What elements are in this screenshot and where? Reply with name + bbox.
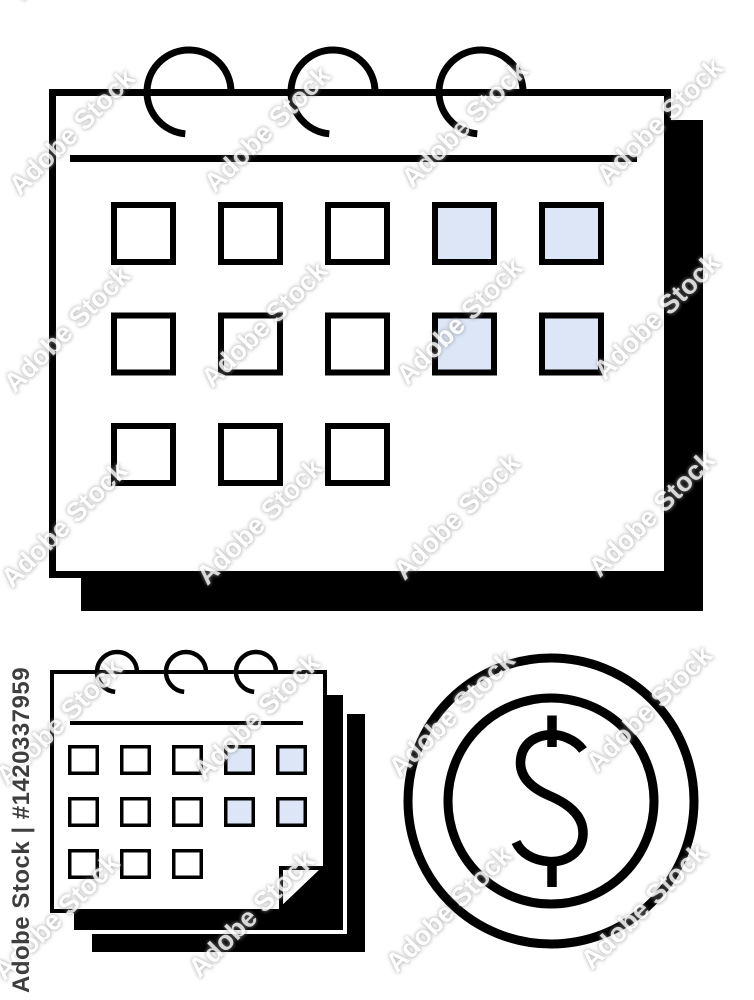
date-cell	[70, 747, 98, 774]
date-cell-highlighted	[542, 316, 601, 373]
date-cell-highlighted	[226, 799, 254, 826]
date-cell	[114, 426, 173, 483]
illustration-canvas	[0, 0, 754, 1000]
date-cell	[174, 799, 202, 826]
date-cell	[174, 851, 202, 878]
date-cell	[328, 316, 387, 373]
date-cell-highlighted	[435, 316, 494, 373]
date-cell	[114, 316, 173, 373]
date-cell-highlighted	[542, 205, 601, 262]
date-cell	[221, 316, 280, 373]
date-cell	[221, 205, 280, 262]
date-cell	[122, 851, 150, 878]
small-calendar-icon	[52, 652, 365, 952]
date-cell-highlighted	[278, 747, 306, 774]
date-cell	[122, 799, 150, 826]
date-cell-highlighted	[278, 799, 306, 826]
dollar-s-curve	[516, 735, 583, 862]
stock-illustration: Adobe StockAdobe StockAdobe StockAdobe S…	[0, 0, 754, 1000]
date-cell	[328, 426, 387, 483]
large-calendar-icon	[53, 50, 704, 611]
date-cell-highlighted	[226, 747, 254, 774]
date-cell	[70, 851, 98, 878]
date-cell	[114, 205, 173, 262]
date-cell	[174, 747, 202, 774]
date-cell-highlighted	[435, 205, 494, 262]
dollar-sign-icon	[516, 716, 583, 888]
date-cell	[328, 205, 387, 262]
date-cell	[122, 747, 150, 774]
date-cell	[221, 426, 280, 483]
date-cell	[70, 799, 98, 826]
dollar-coin-icon	[408, 658, 694, 944]
